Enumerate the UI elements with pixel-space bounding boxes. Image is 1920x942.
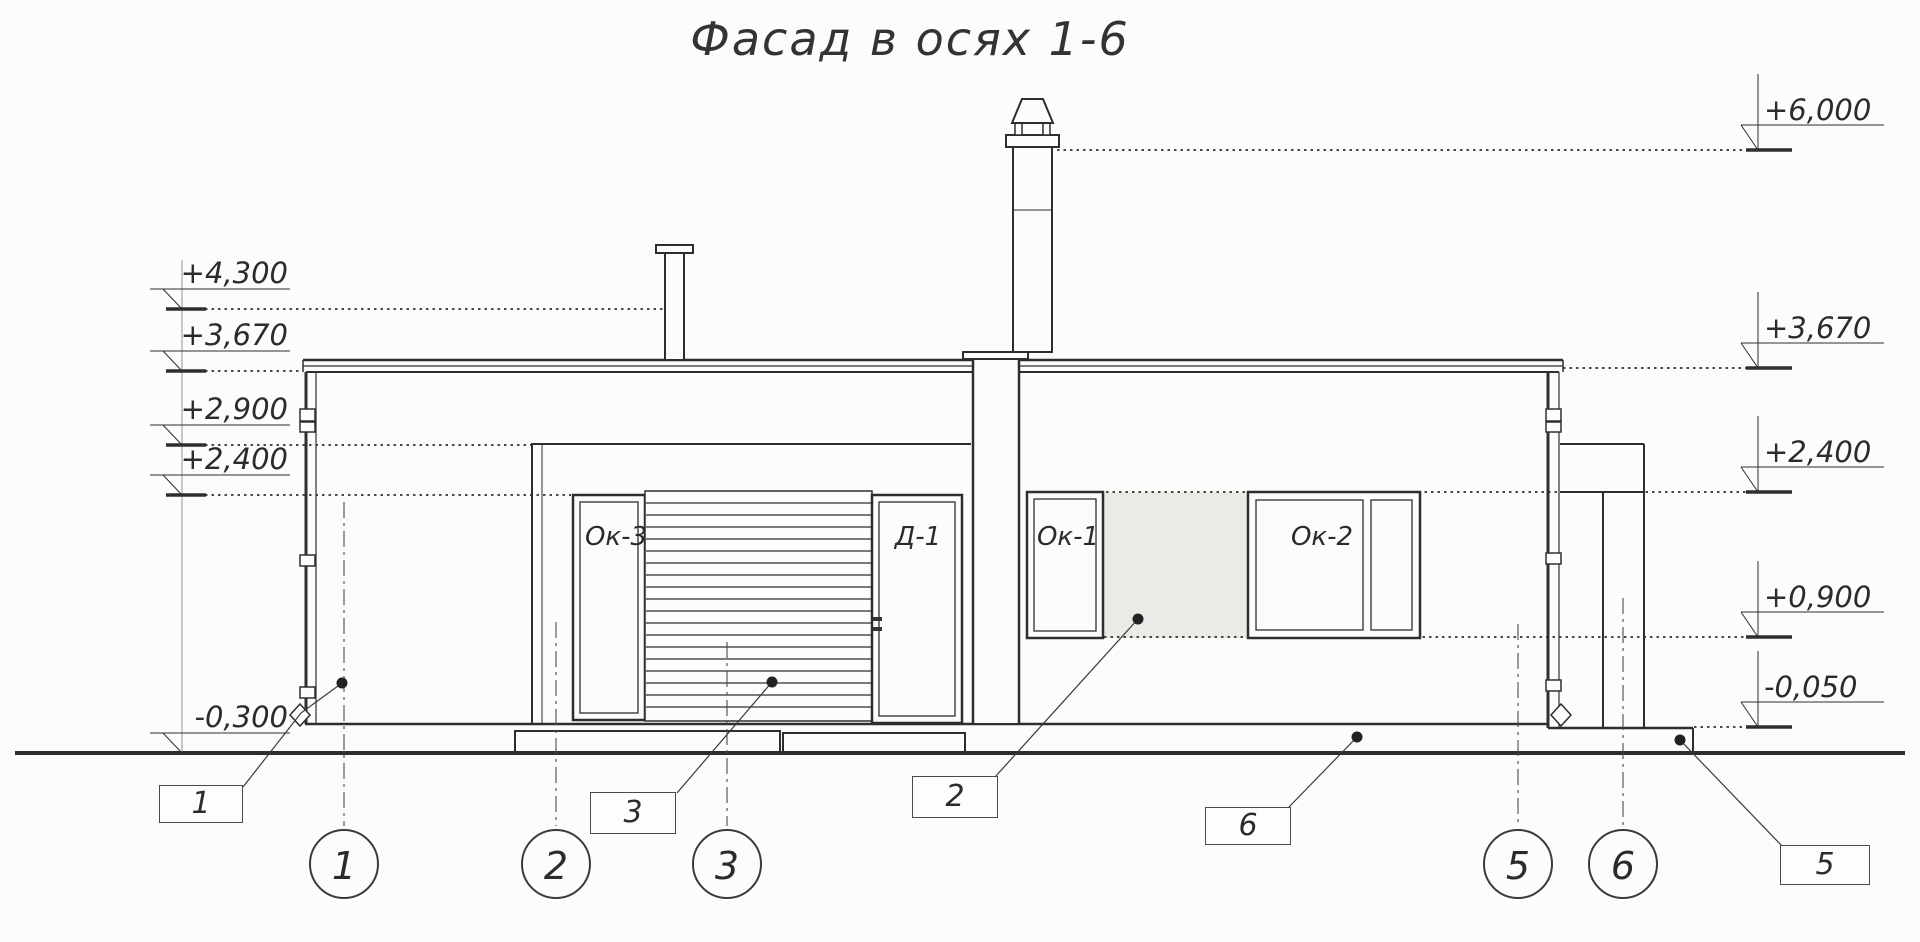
level-label-right-6000: +6,000 bbox=[1764, 94, 1894, 126]
level-label-left-minus300: -0,300 bbox=[148, 701, 288, 733]
vent-pipe bbox=[656, 245, 693, 360]
entrance-steps bbox=[515, 731, 965, 752]
window-label-ok1: Ок-1 bbox=[1013, 522, 1123, 552]
roof-parapet bbox=[303, 360, 1563, 372]
chimney bbox=[1006, 99, 1059, 352]
level-mark-2400-left bbox=[150, 475, 290, 495]
level-label-left-4300: +4,300 bbox=[148, 257, 288, 289]
window-label-ok2: Ок-2 bbox=[1267, 522, 1377, 552]
callout-box-3: 3 bbox=[590, 792, 676, 834]
level-label-left-3670: +3,670 bbox=[148, 319, 288, 351]
level-label-right-minus050: -0,050 bbox=[1764, 671, 1894, 703]
level-label-left-2400: +2,400 bbox=[148, 443, 288, 475]
right-porch bbox=[1560, 444, 1644, 728]
callout-box-5: 5 bbox=[1780, 845, 1870, 885]
window-ok1 bbox=[1027, 492, 1103, 638]
axis-bubble-1: 1 bbox=[309, 829, 379, 899]
level-label-right-2400: +2,400 bbox=[1764, 436, 1894, 468]
level-mark-4300 bbox=[150, 289, 290, 309]
axis-bubble-5: 5 bbox=[1483, 829, 1553, 899]
axis-bubble-3: 3 bbox=[692, 829, 762, 899]
wall-panel bbox=[1103, 492, 1248, 638]
level-mark-3670-left bbox=[150, 351, 290, 371]
window-label-ok3: Ок-3 bbox=[561, 522, 671, 552]
level-label-right-900: +0,900 bbox=[1764, 581, 1894, 613]
callout-box-1: 1 bbox=[159, 785, 243, 823]
right-wall bbox=[1546, 372, 1561, 728]
axis-bubble-2: 2 bbox=[521, 829, 591, 899]
window-ok2 bbox=[1248, 492, 1420, 638]
level-label-right-3670: +3,670 bbox=[1764, 312, 1894, 344]
callout-box-2: 2 bbox=[912, 776, 998, 818]
wood-slat-wall bbox=[645, 491, 872, 721]
facade-drawing-sheet: Фасад в осях 1-6 +4,300 +3,670 +2,900 +2… bbox=[0, 0, 1920, 942]
plinth-line bbox=[305, 724, 1693, 752]
base-diamond-right bbox=[1551, 704, 1571, 726]
axis-bubble-6: 6 bbox=[1588, 829, 1658, 899]
level-label-left-2900: +2,900 bbox=[148, 393, 288, 425]
level-marks-right bbox=[1741, 74, 1884, 727]
left-wall bbox=[300, 372, 316, 724]
drawing-title: Фасад в осях 1-6 bbox=[620, 12, 1200, 66]
level-mark-minus300 bbox=[150, 733, 290, 753]
door-label-d1: Д-1 bbox=[863, 522, 973, 552]
callout-box-6: 6 bbox=[1205, 807, 1291, 845]
